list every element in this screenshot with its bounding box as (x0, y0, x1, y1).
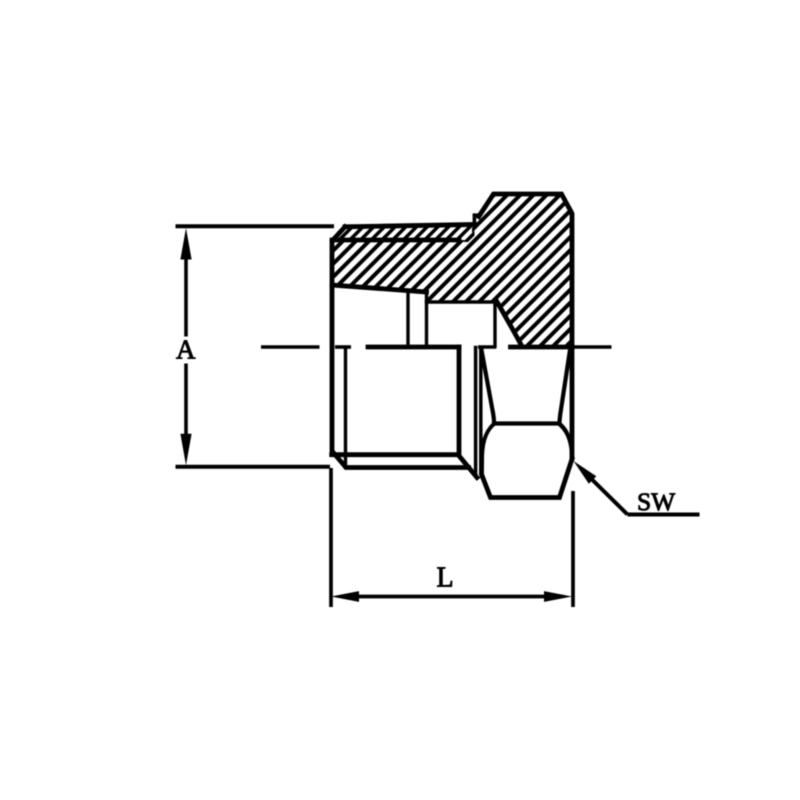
svg-text:L: L (437, 563, 454, 594)
svg-text:A: A (176, 335, 196, 365)
svg-text:SW: SW (637, 487, 676, 516)
